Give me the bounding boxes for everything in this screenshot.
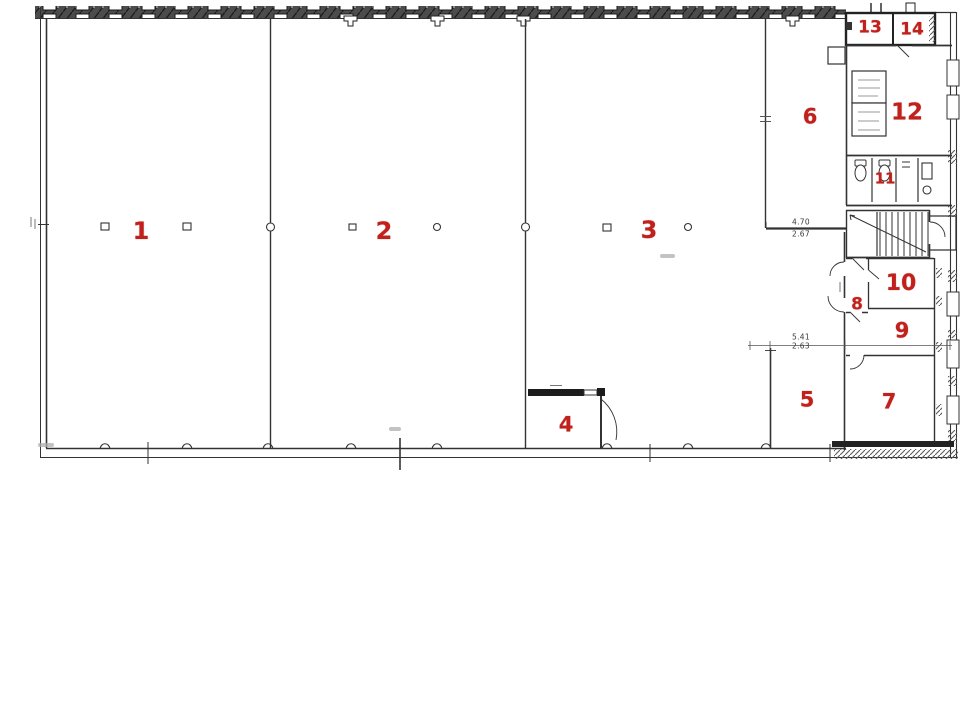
room-label-2: 2 [376, 219, 393, 243]
sink-icon [922, 163, 932, 194]
room-label-14: 14 [900, 22, 924, 39]
staircase [846, 210, 930, 258]
room12-cabinets [852, 71, 886, 136]
illegible-pencil-notes [38, 254, 675, 447]
room-label-7: 7 [882, 392, 897, 413]
room-label-10: 10 [886, 273, 917, 295]
room-label-6: 6 [803, 107, 818, 128]
dimension-corridor-top: 4.70 [792, 218, 810, 226]
dimension-room5-bottom: 2.63 [792, 342, 810, 350]
room-label-5: 5 [800, 390, 815, 411]
dimension-line [748, 341, 952, 350]
room-label-12: 12 [891, 102, 923, 125]
room5-walls [748, 341, 952, 448]
entrance-porch [930, 216, 956, 250]
room-label-13: 13 [858, 20, 882, 37]
room-label-11: 11 [875, 172, 896, 187]
room-label-9: 9 [895, 321, 910, 342]
corridor-east-wall [828, 232, 845, 450]
door-swing [930, 222, 945, 237]
partition-wall-room3-room6 [760, 19, 771, 228]
room-label-8: 8 [851, 297, 863, 314]
door-swing [601, 399, 617, 440]
radiator-marks [936, 268, 942, 416]
room7-walls [832, 441, 958, 459]
door-swing [850, 355, 864, 369]
dimension-corridor-bottom: 2.67 [792, 230, 810, 238]
room11-wc-block [846, 155, 952, 206]
room-label-1: 1 [133, 219, 150, 243]
right-wall-window-openings [947, 60, 959, 424]
room-label-4: 4 [559, 415, 574, 436]
floor-plan: 1 2 3 4 5 6 7 8 9 10 11 12 13 14 4.70 2.… [0, 0, 960, 480]
dimension-room5-top: 5.41 [792, 333, 810, 341]
column-icons [101, 223, 692, 231]
room-label-3: 3 [641, 218, 658, 242]
bottom-exterior-wall [40, 438, 958, 470]
left-exterior-wall [31, 7, 49, 457]
